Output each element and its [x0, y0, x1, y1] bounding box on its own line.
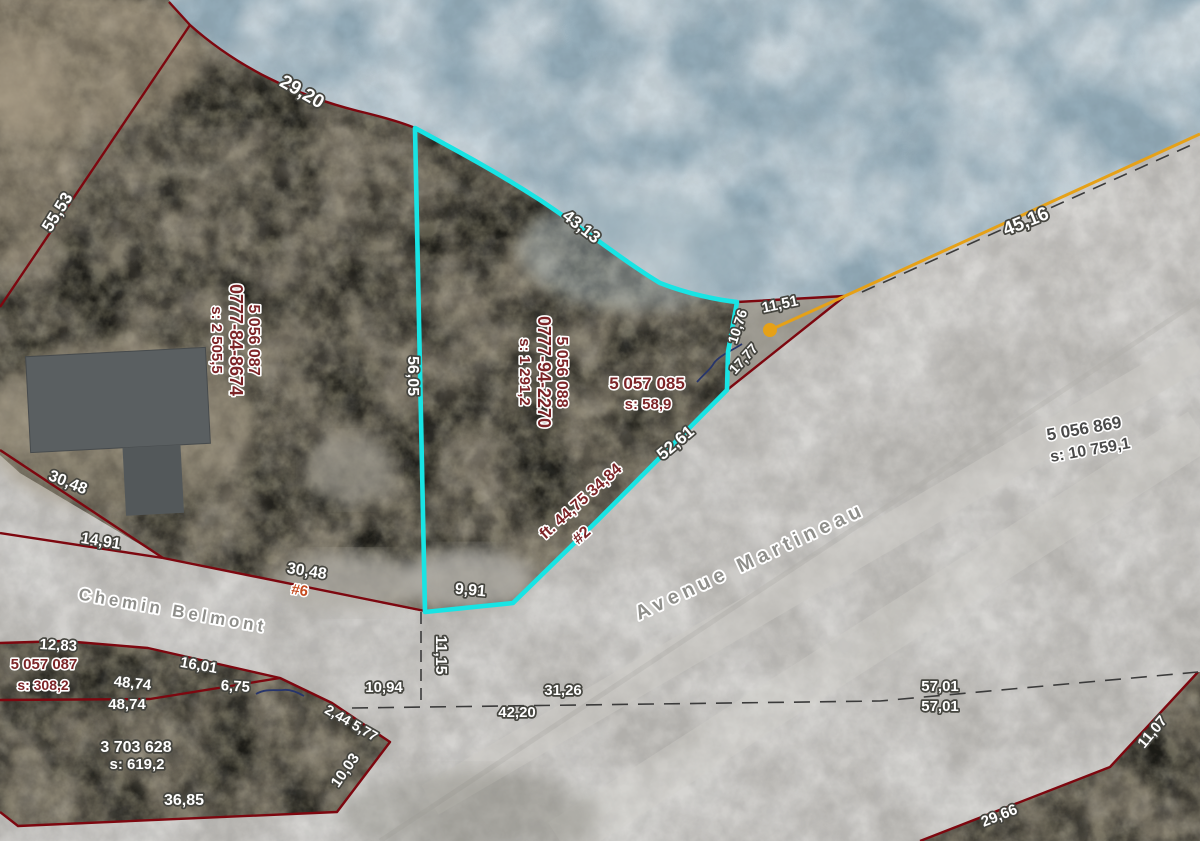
- parcel-id-label: 5 057 087: [11, 656, 78, 673]
- measurement-label: 10,94: [365, 679, 403, 696]
- shore-shallows: [520, 190, 760, 310]
- cadastral-map: 29,2055,5343,1356,059,9111,1511,5110,761…: [0, 0, 1200, 841]
- lot-area-label: s: 58,9: [625, 396, 672, 413]
- parcel-id-label: 5 057 085: [609, 374, 685, 393]
- measurement-label: 42,20: [498, 704, 536, 721]
- parcel-id-label: 3 703 628: [100, 739, 171, 756]
- lot-area-label: s: 308,2: [17, 677, 69, 693]
- measurement-label: 12,83: [39, 636, 77, 655]
- map-viewport[interactable]: 29,2055,5343,1356,059,9111,1511,5110,761…: [0, 0, 1200, 841]
- measurement-label: 11,15: [432, 635, 449, 674]
- marker-dot[interactable]: [763, 323, 777, 337]
- measurement-label: 31,26: [544, 682, 582, 699]
- measurement-label: 57,01: [921, 698, 959, 715]
- civic-number-label: #6: [290, 581, 309, 600]
- measurement-label: 9,91: [454, 581, 487, 601]
- measurement-label: 57,01: [921, 678, 959, 695]
- measurement-label: 56,05: [404, 356, 421, 396]
- measurement-label: 6,75: [220, 677, 250, 696]
- measurement-label: 36,85: [164, 792, 204, 809]
- lot-area-label: s: 619,2: [109, 756, 164, 773]
- measurement-label: 48,74: [108, 696, 146, 713]
